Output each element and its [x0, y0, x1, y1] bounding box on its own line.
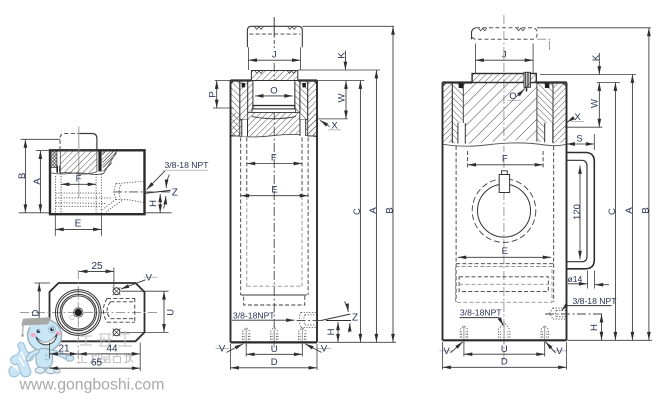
svg-text:Z: Z	[172, 187, 178, 198]
svg-text:K: K	[337, 52, 348, 59]
svg-text:D: D	[31, 309, 42, 316]
svg-text:D: D	[271, 357, 278, 368]
svg-text:B: B	[640, 207, 651, 213]
svg-text:U: U	[501, 344, 508, 355]
svg-text:E: E	[502, 246, 508, 257]
svg-text:W: W	[590, 99, 601, 108]
svg-text:K: K	[591, 54, 602, 61]
svg-text:U: U	[271, 344, 278, 355]
svg-text:D: D	[501, 357, 508, 368]
svg-text:V: V	[219, 344, 226, 355]
svg-text:W: W	[336, 93, 347, 102]
svg-text:44: 44	[106, 343, 118, 354]
svg-text:F: F	[76, 174, 82, 185]
svg-text:3/8-18 NPT: 3/8-18 NPT	[165, 160, 210, 170]
svg-text:E: E	[75, 219, 82, 230]
svg-text:www.gongboshi.com: www.gongboshi.com	[19, 377, 165, 394]
svg-text:F: F	[271, 152, 277, 163]
svg-text:J: J	[272, 50, 277, 61]
svg-text:3/8-18 NPT: 3/8-18 NPT	[573, 296, 618, 306]
svg-text:3/8-18NPT: 3/8-18NPT	[460, 308, 502, 318]
svg-text:H: H	[589, 324, 600, 331]
svg-text:21: 21	[58, 343, 70, 354]
svg-text:V: V	[556, 346, 563, 357]
svg-text:C: C	[352, 208, 363, 215]
svg-text:B: B	[17, 173, 28, 179]
svg-text:120: 120	[572, 204, 583, 220]
svg-text:H: H	[326, 328, 337, 335]
svg-text:V: V	[146, 272, 153, 283]
svg-text:A: A	[368, 207, 379, 214]
svg-text:H: H	[148, 200, 159, 207]
svg-text:V: V	[443, 346, 450, 357]
svg-text:O: O	[270, 85, 277, 96]
svg-text:U: U	[166, 309, 177, 316]
svg-text:B: B	[385, 207, 396, 213]
svg-text:Z: Z	[352, 313, 358, 324]
svg-text:65: 65	[91, 358, 103, 369]
svg-text:S: S	[576, 133, 582, 144]
svg-text:3/8-18NPT: 3/8-18NPT	[233, 311, 275, 321]
svg-text:C: C	[607, 208, 618, 215]
svg-text:P: P	[208, 91, 219, 97]
svg-text:F: F	[502, 154, 508, 165]
svg-text:ø14: ø14	[568, 274, 583, 284]
svg-text:A: A	[32, 178, 43, 185]
svg-text:E: E	[271, 185, 277, 196]
svg-text:J: J	[502, 50, 507, 61]
svg-text:A: A	[624, 207, 635, 214]
svg-text:25: 25	[91, 261, 103, 272]
svg-text:V: V	[321, 344, 328, 355]
